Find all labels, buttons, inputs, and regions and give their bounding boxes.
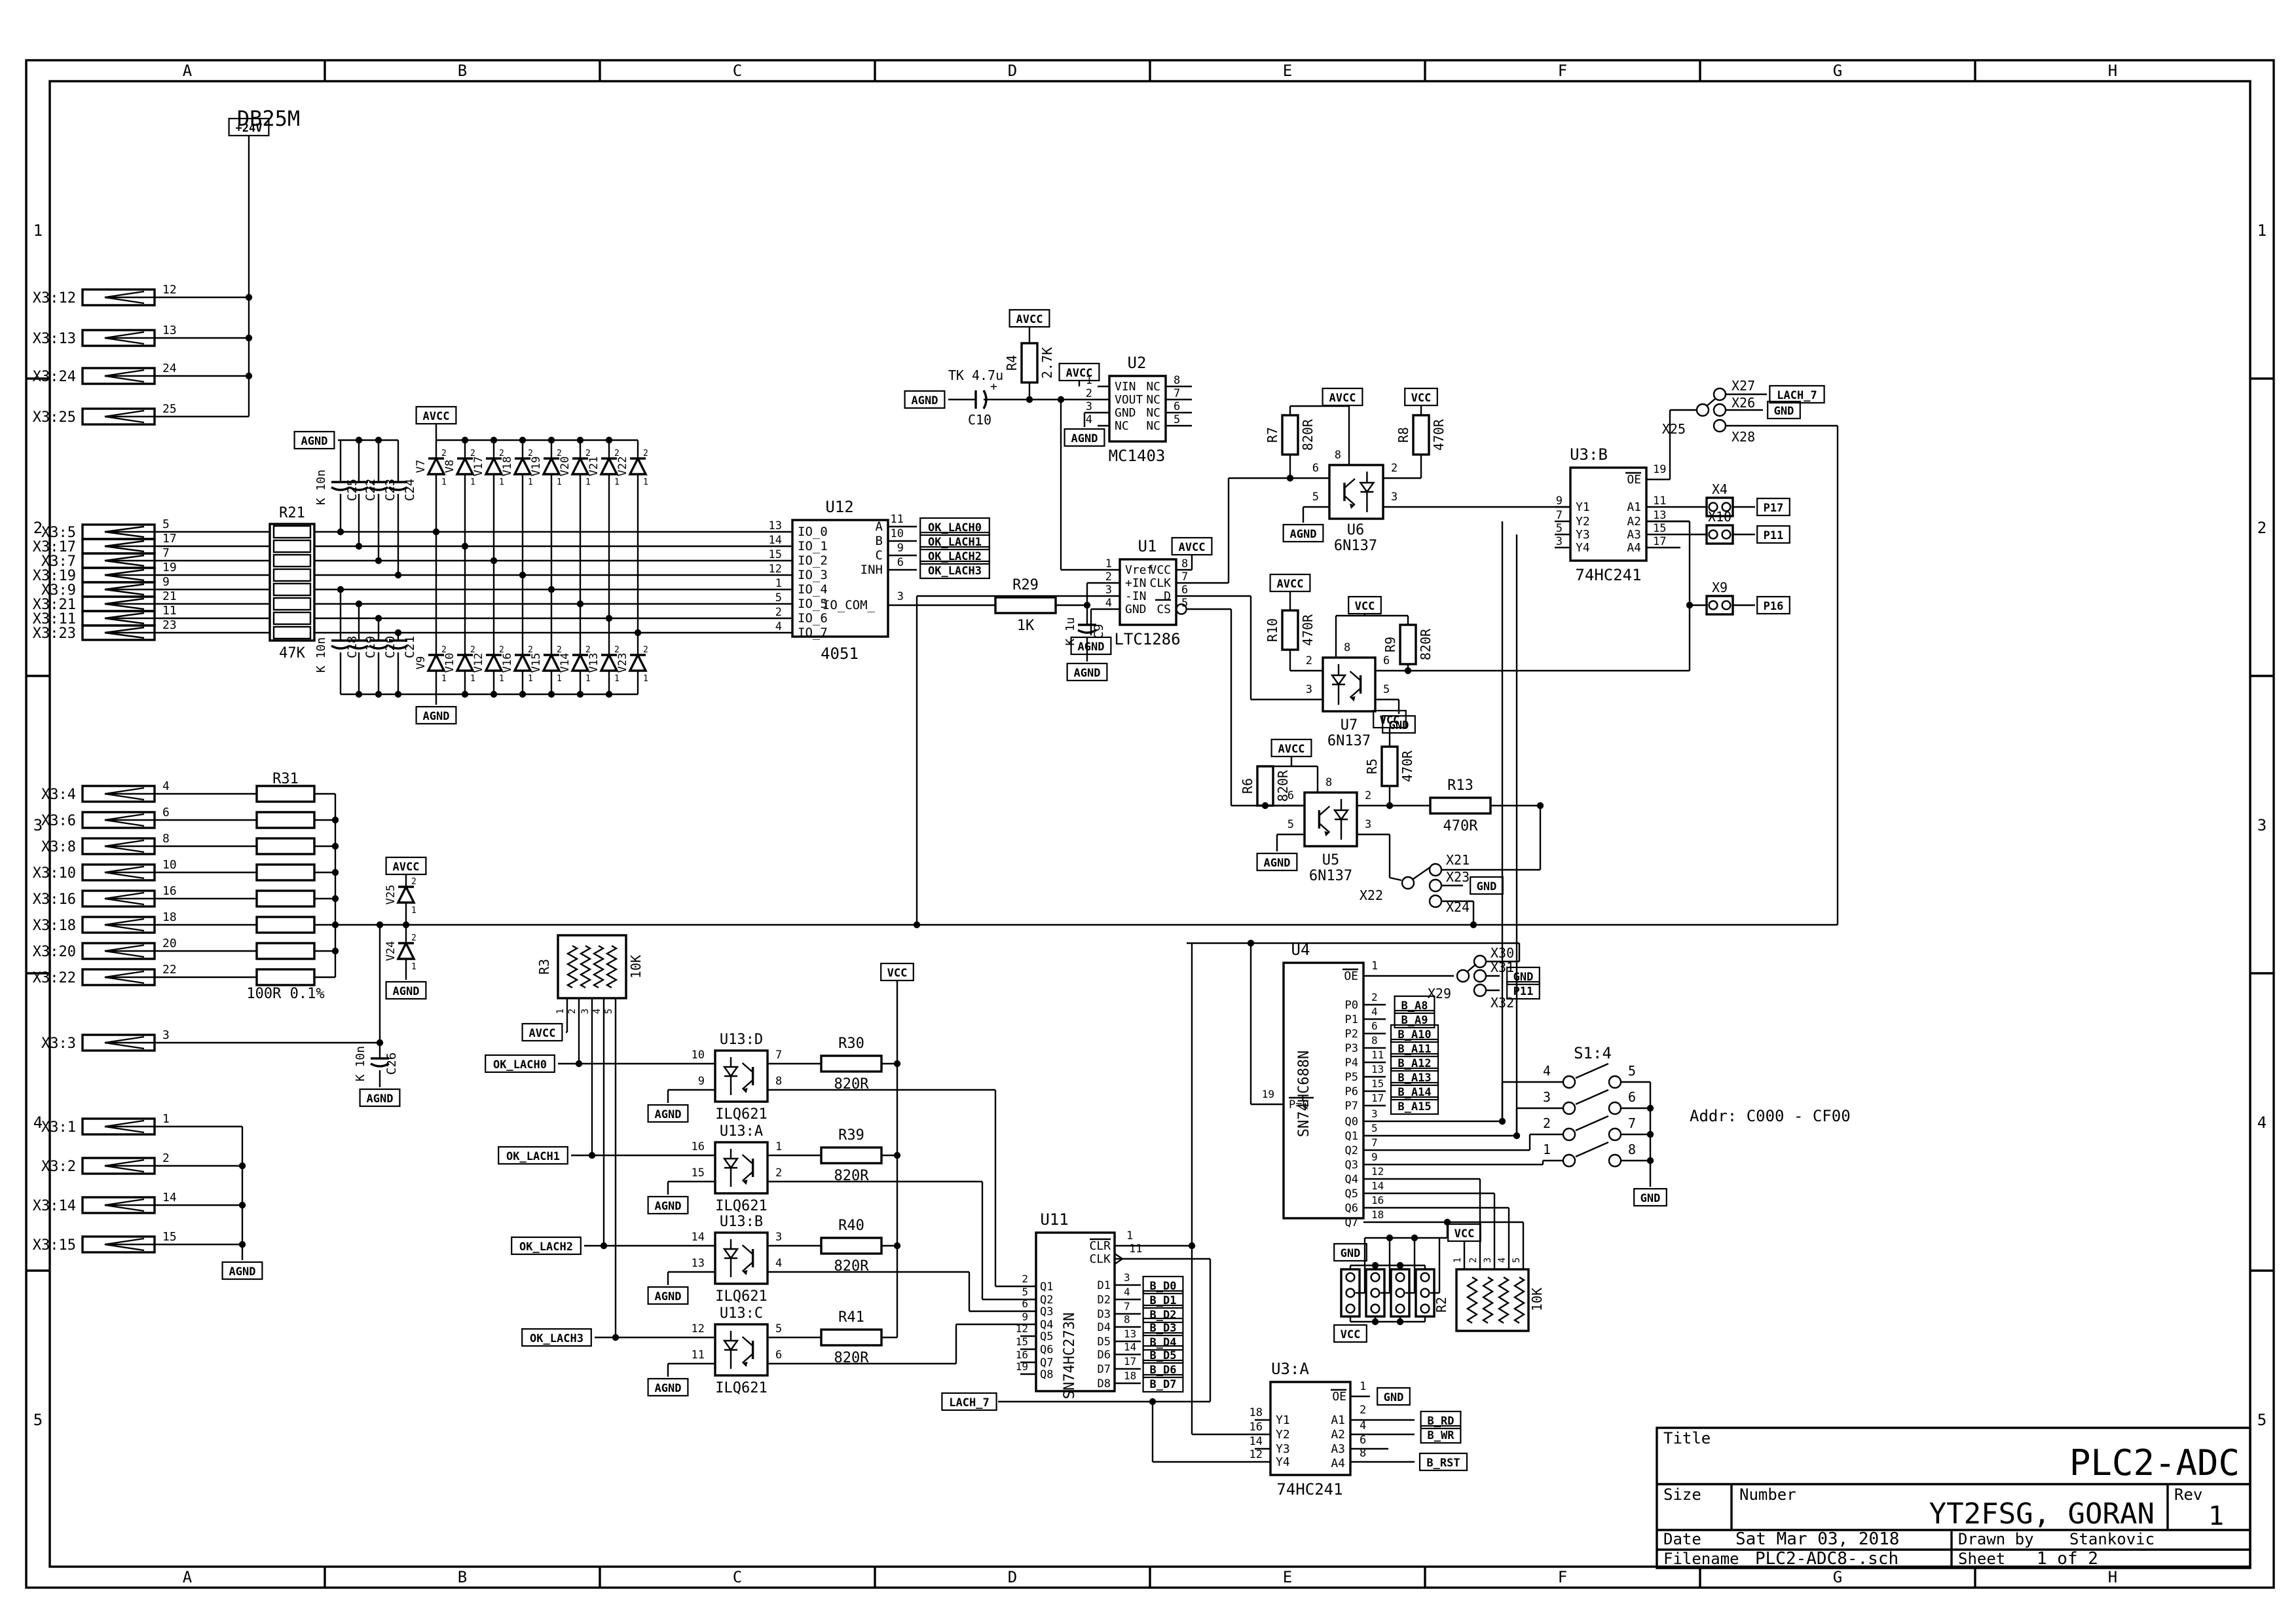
opto-transistor xyxy=(743,1245,753,1254)
pin-number: 10 xyxy=(692,1049,705,1062)
diode xyxy=(544,655,559,671)
net-flag-label: P11 xyxy=(1764,529,1784,542)
junction-dot xyxy=(332,843,339,849)
header-pin xyxy=(1346,1289,1355,1297)
U13-value: ILQ621 xyxy=(715,1380,767,1396)
resistor xyxy=(1382,747,1398,786)
net-flag-label: OK_LACH3 xyxy=(928,565,982,578)
pin-name: P=Q xyxy=(1289,1098,1309,1111)
pin-number: 7 xyxy=(1174,387,1180,400)
pin-number: 4 xyxy=(592,1009,602,1014)
pin-number: 9 xyxy=(1371,1151,1378,1163)
pin-number: 3 xyxy=(1124,1271,1130,1284)
junction-dot xyxy=(377,922,383,928)
pin-name: NC xyxy=(1146,419,1160,433)
resistor-value: 470R xyxy=(1300,614,1316,646)
header-pin xyxy=(1371,1273,1380,1282)
pin-number: 14 xyxy=(1124,1341,1136,1353)
pin-number: 17 xyxy=(1653,535,1666,548)
pin-name: P7 xyxy=(1345,1100,1358,1113)
title-block: Title PLC2-ADC Size Number YT2FSG, GORAN… xyxy=(1657,1428,2250,1569)
power-flag-label: VCC xyxy=(1341,1328,1361,1341)
wire xyxy=(1390,878,1401,880)
pin-number: 4 xyxy=(775,1257,782,1270)
pin-name: Q4 xyxy=(1040,1318,1053,1332)
pin-name: A xyxy=(876,519,883,534)
frame-col-label: A xyxy=(183,62,193,80)
pin-number: 6 xyxy=(1022,1297,1028,1310)
pin-number: 8 xyxy=(1325,776,1332,789)
diode-pin: 1 xyxy=(528,674,533,684)
pin-name: IO_4 xyxy=(798,582,828,597)
R21-element xyxy=(274,555,310,567)
pin-number: 16 xyxy=(692,1140,705,1153)
power-flag-label: AVCC xyxy=(1329,392,1356,405)
pin-name: IO_7 xyxy=(798,625,828,640)
pin-number: 8 xyxy=(1124,1313,1130,1326)
pin-number: 16 xyxy=(1016,1349,1028,1361)
U3A-ref: U3:A xyxy=(1271,1360,1309,1378)
pin-number: 2 xyxy=(1391,462,1398,475)
resistor xyxy=(1413,415,1429,455)
junction-dot xyxy=(332,869,339,876)
resistor xyxy=(1282,610,1298,650)
connector-pin: 8 xyxy=(162,832,170,846)
R21-ref: R21 xyxy=(279,505,305,521)
pin-name: P3 xyxy=(1345,1042,1358,1055)
power-flag-label: AVCC xyxy=(1277,578,1304,591)
pin-name: D1 xyxy=(1098,1279,1111,1292)
junction-dot xyxy=(606,437,612,443)
resistor-ref: R30 xyxy=(838,1035,864,1052)
pin-number: 18 xyxy=(1250,1406,1263,1419)
address-note: Addr: C000 - CF00 xyxy=(1690,1107,1851,1125)
pin-name: IO_3 xyxy=(798,568,828,582)
pin-number: 1 xyxy=(555,1009,566,1014)
R13-value: 470R xyxy=(1443,818,1479,834)
pin-number: 13 xyxy=(1371,1063,1384,1075)
R29-ref: R29 xyxy=(1012,577,1039,593)
R3-network xyxy=(558,935,626,998)
connector-pin: 11 xyxy=(162,604,177,618)
pin-number: 10 xyxy=(891,527,904,540)
jumper-label: X10 xyxy=(1708,509,1731,525)
U13-ref: U13:C xyxy=(720,1305,763,1322)
connector-label: X3:4 xyxy=(41,787,76,803)
net-flag-label: B_D2 xyxy=(1150,1309,1177,1322)
junction-dot xyxy=(395,572,401,578)
junction-dot xyxy=(462,543,468,550)
junction-dot xyxy=(635,629,641,636)
opto-transistor xyxy=(743,1337,753,1346)
R21-network xyxy=(270,524,314,641)
power-flag-label: GND xyxy=(1640,1192,1661,1205)
pin-name: A3 xyxy=(1331,1442,1345,1456)
pin-name: P2 xyxy=(1345,1028,1358,1041)
junction-dot xyxy=(894,1152,900,1159)
U11-ref: U11 xyxy=(1040,1210,1068,1229)
opto-transistor xyxy=(1350,671,1361,681)
resistor xyxy=(1022,343,1037,382)
pin-number: 11 xyxy=(1129,1242,1142,1256)
pin-name: A2 xyxy=(1627,515,1641,529)
diode-ref: V20 xyxy=(559,457,572,477)
pin-name: A4 xyxy=(1627,541,1641,555)
pin-number: 5 xyxy=(775,1322,782,1335)
pin-name: D4 xyxy=(1098,1321,1111,1334)
pin-number: 19 xyxy=(1653,463,1666,476)
power-flag-label: VCC xyxy=(887,967,908,980)
pin-number: 3 xyxy=(1483,1258,1493,1263)
size-label: Size xyxy=(1663,1485,1701,1504)
opto-led xyxy=(1360,483,1373,492)
pin-name: A4 xyxy=(1331,1457,1345,1470)
diode xyxy=(515,655,530,671)
pin-name: Y3 xyxy=(1276,1442,1290,1456)
U5-value: 6N137 xyxy=(1309,868,1352,884)
pin-name: IO_0 xyxy=(798,525,828,539)
pin-name: Q2 xyxy=(1040,1294,1053,1307)
net-flag-label: LACH_7 xyxy=(1777,389,1817,402)
pin-number: 2 xyxy=(1468,1258,1479,1263)
jumper-pin xyxy=(1709,601,1718,610)
junction-dot xyxy=(332,922,339,928)
connector-label: X3:18 xyxy=(33,918,76,934)
pin-number: 7 xyxy=(1124,1300,1130,1313)
power-flag-label: AGND xyxy=(1264,857,1291,870)
diode-pin: 1 xyxy=(441,674,447,684)
junction-dot xyxy=(1386,802,1393,809)
diode-ref: V19 xyxy=(530,457,543,477)
pin-name: Y1 xyxy=(1276,1413,1290,1427)
U13-ref: U13:D xyxy=(720,1032,763,1048)
U5-ref: U5 xyxy=(1322,852,1340,868)
junction-dot xyxy=(462,437,468,443)
jumper-label: X27 xyxy=(1731,378,1755,394)
R13-ref: R13 xyxy=(1447,777,1473,794)
pin-number: 5 xyxy=(1022,1286,1028,1298)
diode-pin: 1 xyxy=(614,674,620,684)
header-pin xyxy=(1346,1305,1355,1313)
junction-dot xyxy=(375,615,382,622)
junction-dot xyxy=(395,691,401,698)
pin-number: 11 xyxy=(1653,494,1666,508)
pin-name: Q2 xyxy=(1345,1144,1358,1157)
jumper-pin xyxy=(1609,1155,1621,1166)
jumper-pin xyxy=(1609,1129,1621,1140)
junction-dot xyxy=(601,1242,607,1249)
U13-value: ILQ621 xyxy=(715,1106,767,1123)
pin-number: 13 xyxy=(1653,509,1666,522)
pin-number: 3 xyxy=(775,1231,782,1244)
R21-value: 47K xyxy=(279,645,305,662)
pin-name: D8 xyxy=(1098,1377,1111,1390)
junction-dot xyxy=(577,601,583,607)
pin-name: CS xyxy=(1157,603,1171,616)
wire xyxy=(1576,1142,1608,1157)
power-flag-label: AGND xyxy=(655,1382,682,1395)
connector-pin: 21 xyxy=(162,589,177,603)
diode-pin: 1 xyxy=(441,477,447,487)
diode-ref: V18 xyxy=(501,457,514,477)
diode xyxy=(486,655,502,671)
resistor-ref: R39 xyxy=(838,1127,864,1144)
pin-number: 5 xyxy=(1181,597,1188,610)
pin-name: D6 xyxy=(1098,1349,1111,1362)
jumper-pin xyxy=(1609,1102,1621,1114)
jumper-label: X25 xyxy=(1662,421,1686,437)
opto-led xyxy=(724,1249,737,1258)
pin-name: Y2 xyxy=(1276,1428,1290,1442)
junction-dot xyxy=(239,1163,246,1169)
junction-dot xyxy=(491,437,497,443)
resistor-value: 820R xyxy=(1300,419,1316,451)
frame-row-label: 5 xyxy=(2257,1411,2267,1429)
frame-col-label: B xyxy=(458,1568,467,1586)
U4-value: SN74HC688N xyxy=(1296,1051,1312,1137)
power-flag-label: AGND xyxy=(367,1092,394,1106)
sheet-label: Sheet xyxy=(1958,1550,2005,1568)
diode xyxy=(486,458,502,474)
pin-number: 9 xyxy=(897,542,904,555)
power-flag-label: AGND xyxy=(1078,641,1105,654)
connector-label: X3:6 xyxy=(41,813,76,829)
power-flag-label: AVCC xyxy=(1066,367,1093,380)
U7-value: 6N137 xyxy=(1327,733,1371,749)
jumper-label: X26 xyxy=(1731,395,1755,411)
sheet-title: PLC2-ADC xyxy=(2069,1442,2240,1483)
pin-number: 8 xyxy=(1344,641,1350,654)
pin-name: VCC xyxy=(1149,563,1171,577)
junction-dot xyxy=(375,557,382,564)
connector-pin: 18 xyxy=(162,910,177,924)
pin-name: Q8 xyxy=(1040,1368,1053,1381)
pin-name: C xyxy=(876,548,883,563)
header-pin xyxy=(1396,1273,1405,1282)
pin-number: 2 xyxy=(1086,387,1092,400)
diode xyxy=(457,458,473,474)
pin-name: D5 xyxy=(1098,1335,1111,1349)
jumper-pin xyxy=(1474,970,1486,982)
pin-number: 6 xyxy=(1174,400,1180,413)
power-flag-label: AGND xyxy=(655,1290,682,1303)
pin-number: 7 xyxy=(1181,570,1188,584)
net-flag-label: B_A15 xyxy=(1398,1100,1431,1113)
pin-number: 13 xyxy=(692,1257,705,1270)
pin-number: 17 xyxy=(1371,1092,1384,1104)
header-pin xyxy=(1396,1289,1405,1297)
pin-number: 5 xyxy=(1628,1063,1636,1079)
power-flag-label: AVCC xyxy=(423,410,450,423)
R21-element xyxy=(274,569,310,581)
pin-name: A2 xyxy=(1331,1428,1345,1442)
diode xyxy=(572,458,588,474)
pin-name: D2 xyxy=(1098,1294,1111,1307)
resistor-value: 2.7K xyxy=(1039,347,1055,379)
pin-number: 5 xyxy=(1556,522,1563,535)
pin-number: 4 xyxy=(1543,1063,1551,1079)
pin-number: 5 xyxy=(1287,818,1294,831)
U11-value: SN74HC273N xyxy=(1062,1313,1078,1399)
pin-name: CLK xyxy=(1089,1252,1111,1266)
date-label: Date xyxy=(1663,1530,1701,1548)
pin-name: OE xyxy=(1332,1390,1346,1404)
wire xyxy=(1467,964,1476,972)
junction-dot xyxy=(519,437,526,443)
diode-pin: 1 xyxy=(557,477,562,487)
pin-name: P0 xyxy=(1345,999,1358,1012)
U13-ref: U13:B xyxy=(720,1214,763,1230)
pin-number: 16 xyxy=(1250,1421,1263,1434)
pin-name: P5 xyxy=(1345,1071,1358,1084)
pin-number: 14 xyxy=(692,1231,705,1244)
pin-number: 17 xyxy=(1124,1355,1136,1368)
junction-dot xyxy=(894,1060,900,1067)
U12-ref: U12 xyxy=(825,498,853,516)
date-value: Sat Mar 03, 2018 xyxy=(1735,1529,1899,1549)
net-flag-label: OK_LACH3 xyxy=(530,1332,583,1345)
junction-dot xyxy=(375,437,382,443)
diode xyxy=(398,943,414,959)
resistor-ref: R9 xyxy=(1382,637,1398,652)
pin-number: 12 xyxy=(1250,1448,1263,1461)
connector-pin: 2 xyxy=(162,1151,170,1165)
jumper-X9 xyxy=(1707,596,1733,614)
pin-number: 3 xyxy=(1556,535,1563,548)
jumper-pin xyxy=(1709,531,1718,539)
pin-name: OE xyxy=(1344,969,1358,983)
connector-label: X3:3 xyxy=(41,1035,76,1052)
frame-row-label: 2 xyxy=(2257,519,2267,537)
diode-ref: V22 xyxy=(616,457,629,477)
pin-number: 5 xyxy=(1383,683,1390,696)
power-flag-label: AGND xyxy=(423,710,450,723)
junction-dot xyxy=(239,1202,246,1208)
pin-name: NC xyxy=(1146,380,1160,394)
title-label: Title xyxy=(1663,1429,1711,1447)
power-flag-label: GND xyxy=(1341,1247,1361,1260)
diode xyxy=(544,458,559,474)
jumper-label: X29 xyxy=(1428,986,1451,1001)
net-flag-label: B_D7 xyxy=(1150,1378,1177,1391)
pin-name: GND xyxy=(1125,603,1147,616)
diode xyxy=(630,655,646,671)
pin-number: 5 xyxy=(1511,1258,1522,1263)
diode-pin: 2 xyxy=(411,933,417,943)
connector-pin: 4 xyxy=(162,779,170,793)
pin-name: IO_6 xyxy=(798,611,828,625)
net-flag-label: B_WR xyxy=(1428,1429,1455,1442)
diode-pin: 2 xyxy=(643,645,648,655)
connector-label: X3:25 xyxy=(33,409,76,426)
connector-label: X3:2 xyxy=(41,1159,76,1175)
pin-name: IO_1 xyxy=(798,539,828,553)
U3B-ref: U3:B xyxy=(1570,445,1608,464)
network-zigzag xyxy=(1468,1277,1477,1323)
jumper-pin xyxy=(1474,984,1486,996)
connector-pin: 14 xyxy=(162,1191,177,1204)
pin-number: 4 xyxy=(775,620,782,633)
C26-ref: C26 xyxy=(384,1053,399,1075)
cap-group-value: K 10n xyxy=(314,470,328,505)
jumper-pin xyxy=(1430,864,1441,876)
jumper-pin xyxy=(1714,420,1726,432)
pin-number: 15 xyxy=(692,1166,705,1180)
pin-name: Q0 xyxy=(1345,1115,1358,1129)
opto-transistor xyxy=(743,1080,753,1089)
power-flag-label: AGND xyxy=(1071,432,1098,445)
pin-number: 2 xyxy=(775,606,782,619)
diode-ref: V13 xyxy=(587,653,601,673)
diode-pin: 1 xyxy=(557,674,562,684)
diode xyxy=(572,655,588,671)
jumper-label: X21 xyxy=(1446,852,1470,868)
pin-number: 6 xyxy=(775,1349,782,1362)
U3A-value: 74HC241 xyxy=(1276,1480,1342,1499)
pin-number: 1 xyxy=(775,1140,782,1153)
pin-name: INH xyxy=(861,563,883,577)
pin-name: NC xyxy=(1146,393,1160,407)
resistor-ref: R7 xyxy=(1265,427,1280,443)
pin-number: 4 xyxy=(1360,1419,1366,1432)
jumper-pin xyxy=(1402,877,1414,889)
pin-name: A1 xyxy=(1331,1413,1345,1427)
opto-led xyxy=(724,1159,737,1168)
opto-transistor xyxy=(743,1063,753,1072)
frame-col-label: G xyxy=(1833,62,1842,80)
U3B-value: 74HC241 xyxy=(1575,566,1641,584)
pin-number: 3 xyxy=(1543,1089,1551,1105)
frame-row-label: 1 xyxy=(2257,221,2267,240)
frame-col-label: C xyxy=(733,1568,742,1586)
jumper-label: X28 xyxy=(1731,429,1755,445)
jumper-pin xyxy=(1563,1129,1575,1140)
pin-number: 4 xyxy=(1105,597,1112,610)
jumper-pin xyxy=(1563,1076,1575,1088)
net-flag-label: OK_LACH0 xyxy=(493,1058,547,1072)
diode-ref: V12 xyxy=(472,653,485,673)
C10-ref: C10 xyxy=(968,412,991,428)
pin-number: 5 xyxy=(1371,1122,1378,1134)
junction-dot xyxy=(1189,1242,1195,1249)
connector-pin: 25 xyxy=(162,402,177,416)
pin-name: D7 xyxy=(1098,1363,1111,1376)
pin-name: OE xyxy=(1627,473,1641,487)
pin-name: Y4 xyxy=(1276,1455,1290,1469)
U13:A-body xyxy=(715,1142,768,1193)
resistor xyxy=(257,812,314,828)
net-flag-label: B_D4 xyxy=(1150,1336,1177,1349)
pin-number: 11 xyxy=(891,513,904,526)
pin-name: Y3 xyxy=(1576,528,1590,542)
pin-number: 6 xyxy=(1383,654,1390,667)
frame-col-label: C xyxy=(733,62,742,80)
power-flag-label: AVCC xyxy=(393,861,420,874)
connector-label: X3:12 xyxy=(33,290,76,307)
pin-number: 4 xyxy=(1497,1258,1508,1263)
resistor xyxy=(257,943,314,959)
junction-dot xyxy=(332,948,339,954)
jumper-label: X4 xyxy=(1712,481,1728,497)
resistor-value: 820R xyxy=(1418,628,1434,660)
R31-value: 100R 0.1% xyxy=(246,986,324,1002)
U12-value: 4051 xyxy=(821,644,859,663)
S1-ref: S1:4 xyxy=(1574,1044,1612,1062)
opto-transistor xyxy=(743,1155,753,1164)
U13:B-body xyxy=(715,1233,768,1284)
U13-ref: U13:A xyxy=(720,1123,763,1140)
pin-number: 1 xyxy=(1453,1258,1463,1263)
